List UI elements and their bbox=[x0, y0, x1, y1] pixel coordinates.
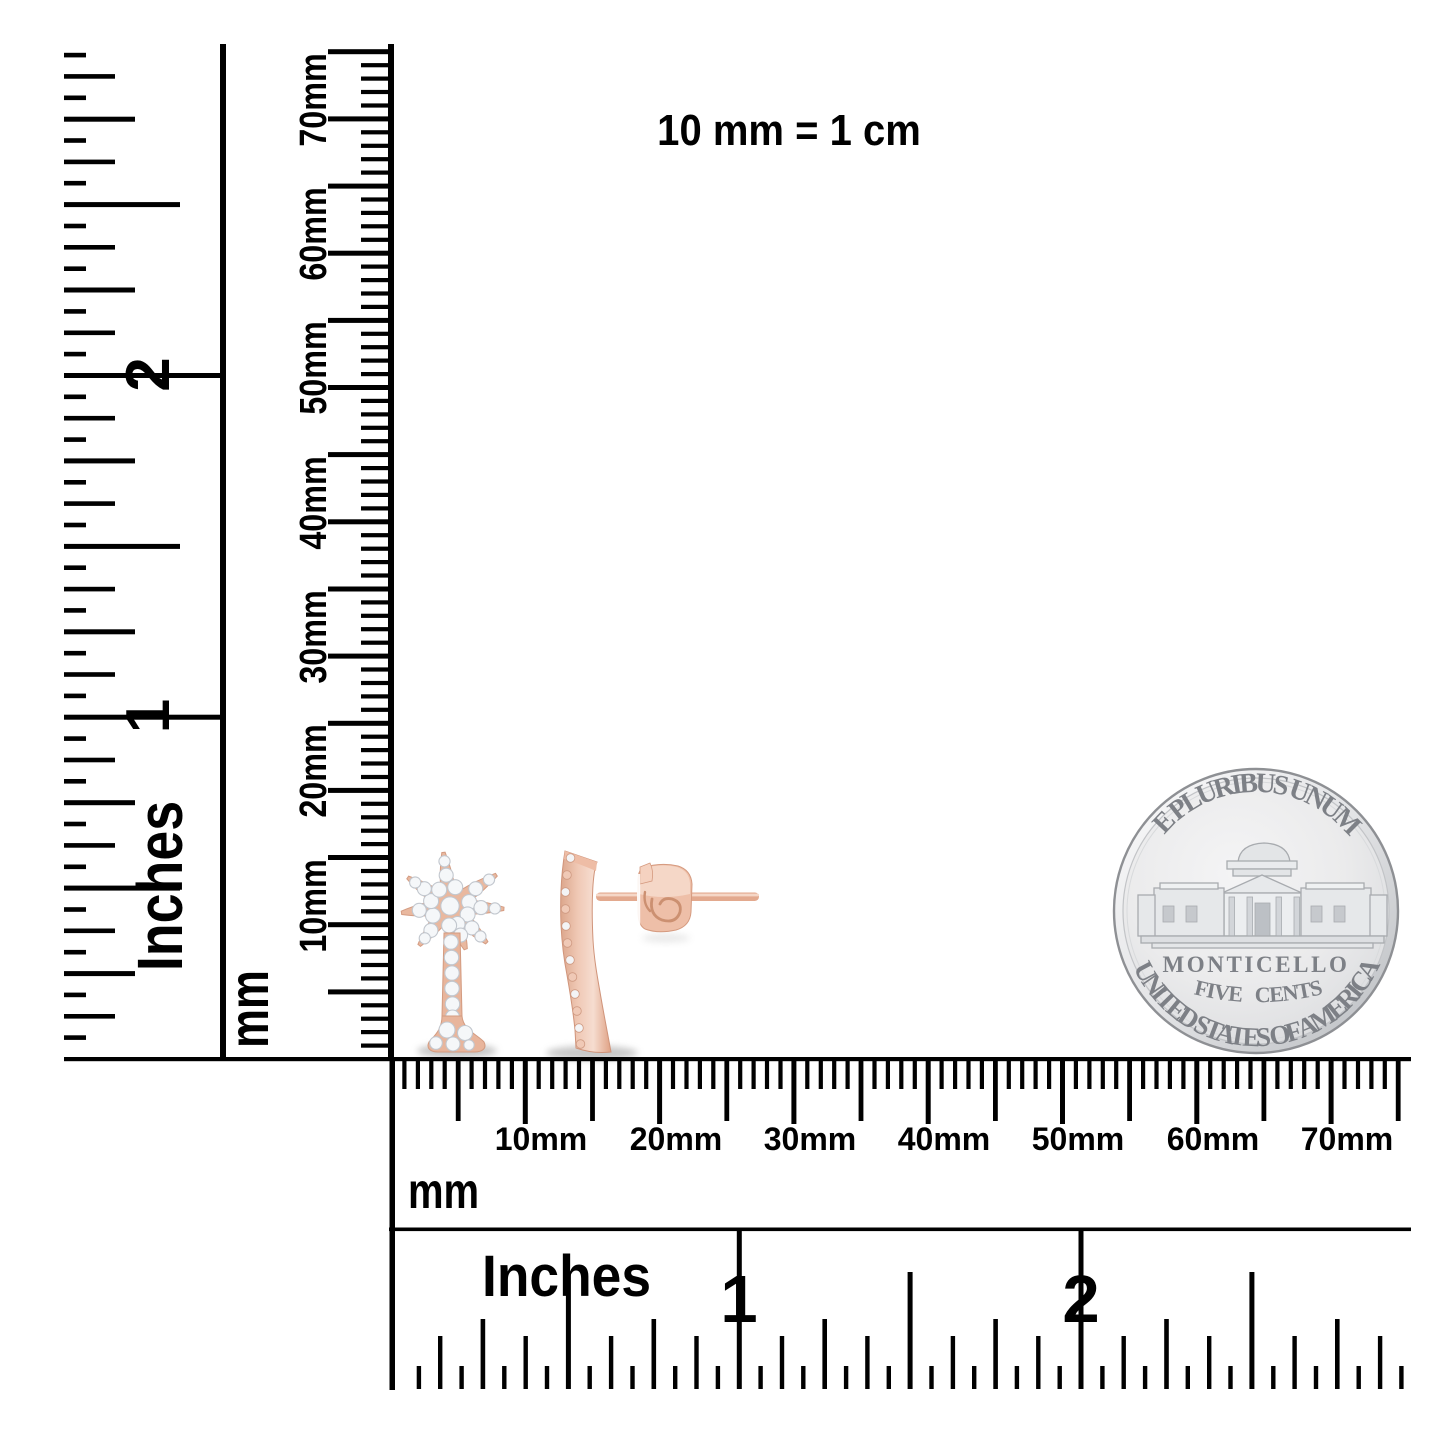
svg-text:mm: mm bbox=[218, 970, 280, 1048]
svg-text:40mm: 40mm bbox=[898, 1121, 991, 1157]
svg-text:10 mm = 1 cm: 10 mm = 1 cm bbox=[657, 105, 921, 154]
svg-text:10mm: 10mm bbox=[293, 859, 335, 952]
svg-text:50mm: 50mm bbox=[1032, 1121, 1125, 1157]
svg-text:60mm: 60mm bbox=[293, 187, 335, 280]
svg-text:MONTICELLO: MONTICELLO bbox=[1162, 952, 1349, 977]
svg-text:50mm: 50mm bbox=[293, 321, 335, 414]
svg-text:70mm: 70mm bbox=[293, 53, 335, 146]
svg-text:70mm: 70mm bbox=[1301, 1121, 1394, 1157]
svg-text:20mm: 20mm bbox=[630, 1121, 723, 1157]
svg-text:10mm: 10mm bbox=[495, 1121, 588, 1157]
svg-text:40mm: 40mm bbox=[293, 456, 335, 549]
svg-text:mm: mm bbox=[408, 1163, 479, 1219]
svg-text:30mm: 30mm bbox=[293, 590, 335, 683]
svg-text:20mm: 20mm bbox=[293, 724, 335, 817]
svg-text:30mm: 30mm bbox=[764, 1121, 857, 1157]
svg-text:Inches: Inches bbox=[482, 1244, 651, 1309]
svg-text:1: 1 bbox=[720, 1262, 757, 1337]
svg-text:Inches: Inches bbox=[124, 801, 197, 971]
svg-text:1: 1 bbox=[114, 699, 183, 733]
svg-text:2: 2 bbox=[114, 357, 183, 391]
svg-text:2: 2 bbox=[1062, 1262, 1099, 1337]
svg-text:60mm: 60mm bbox=[1167, 1121, 1260, 1157]
